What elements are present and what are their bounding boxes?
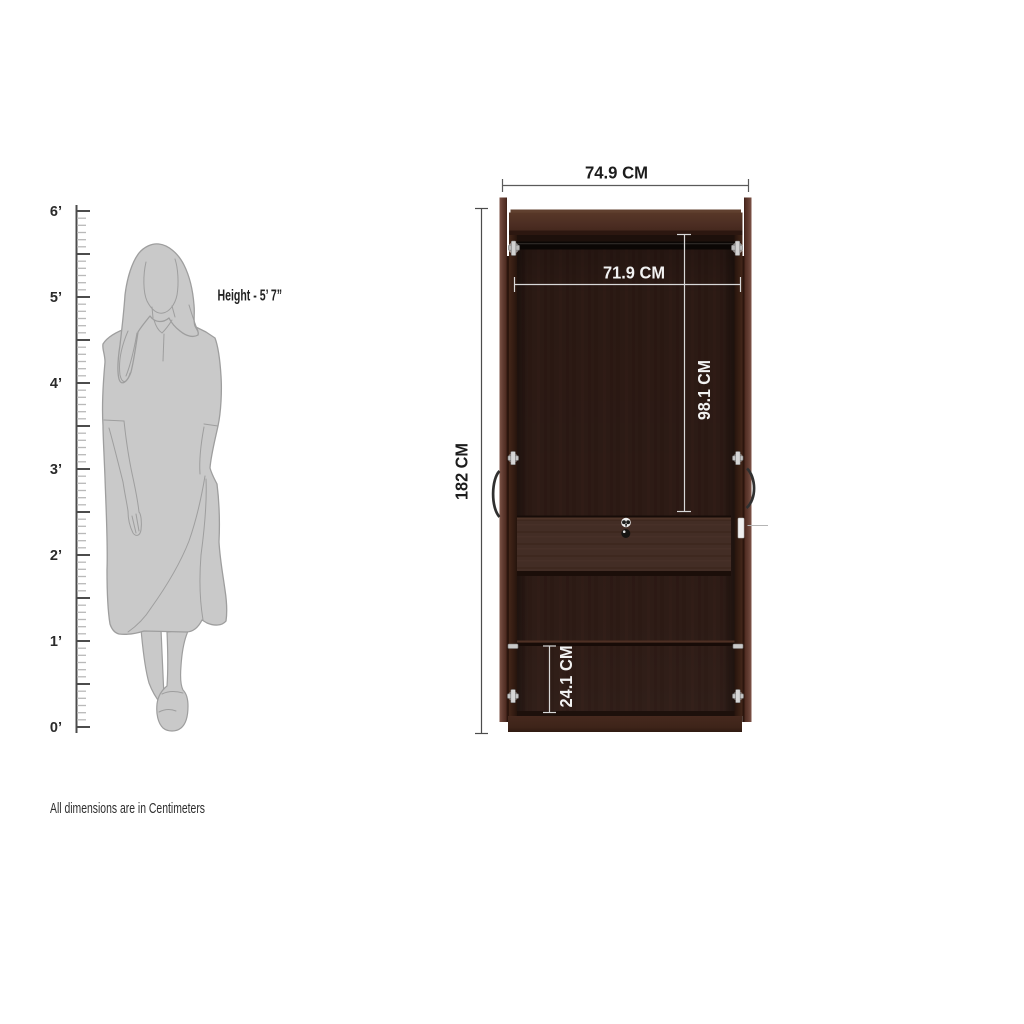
svg-text:71.9 CM: 71.9 CM (603, 263, 665, 283)
svg-text:182 CM: 182 CM (452, 443, 472, 500)
svg-text:24.1 CM: 24.1 CM (556, 646, 576, 708)
svg-text:4’: 4’ (50, 376, 62, 392)
svg-text:98.1 CM: 98.1 CM (694, 360, 714, 420)
svg-text:1’: 1’ (50, 634, 62, 650)
svg-text:2’: 2’ (50, 548, 62, 564)
svg-text:74.9 CM: 74.9 CM (585, 163, 648, 183)
svg-text:Height - 5’ 7”: Height - 5’ 7” (218, 288, 283, 305)
svg-text:All dimensions are in Centimet: All dimensions are in Centimeters (50, 801, 205, 817)
svg-text:0’: 0’ (50, 720, 62, 736)
svg-text:5’: 5’ (50, 290, 62, 306)
svg-text:3’: 3’ (50, 462, 62, 478)
svg-text:6’: 6’ (50, 204, 62, 220)
